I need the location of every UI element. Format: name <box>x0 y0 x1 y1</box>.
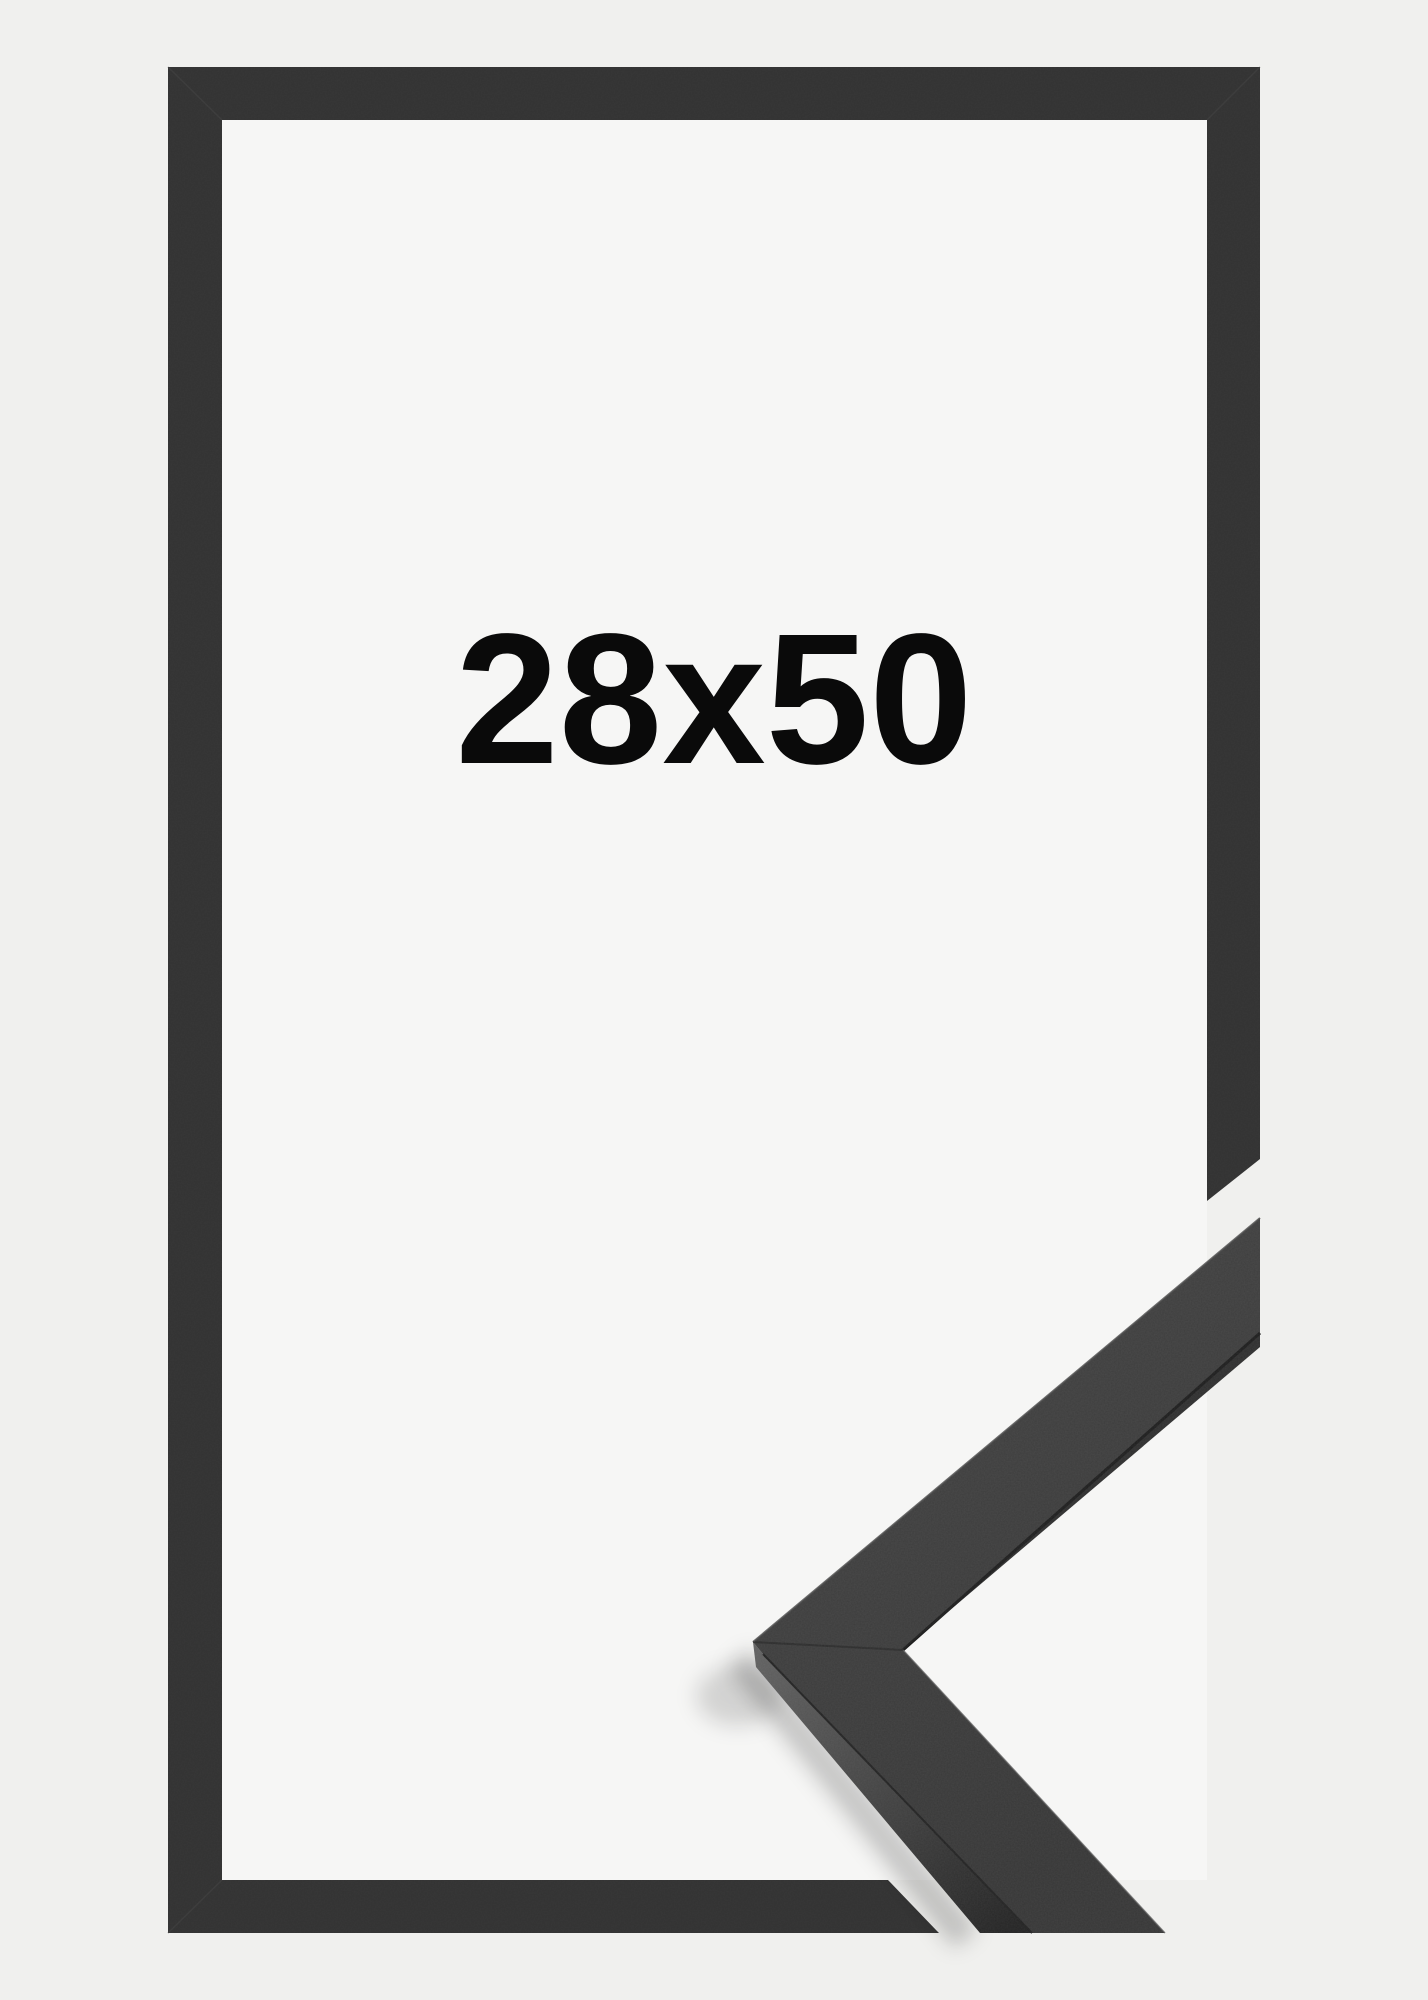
frame-size-product-image: 28x50 <box>0 0 1428 2000</box>
frame-interior <box>222 120 1207 1880</box>
frame-illustration: 28x50 <box>0 0 1428 2000</box>
size-label: 28x50 <box>455 596 972 803</box>
